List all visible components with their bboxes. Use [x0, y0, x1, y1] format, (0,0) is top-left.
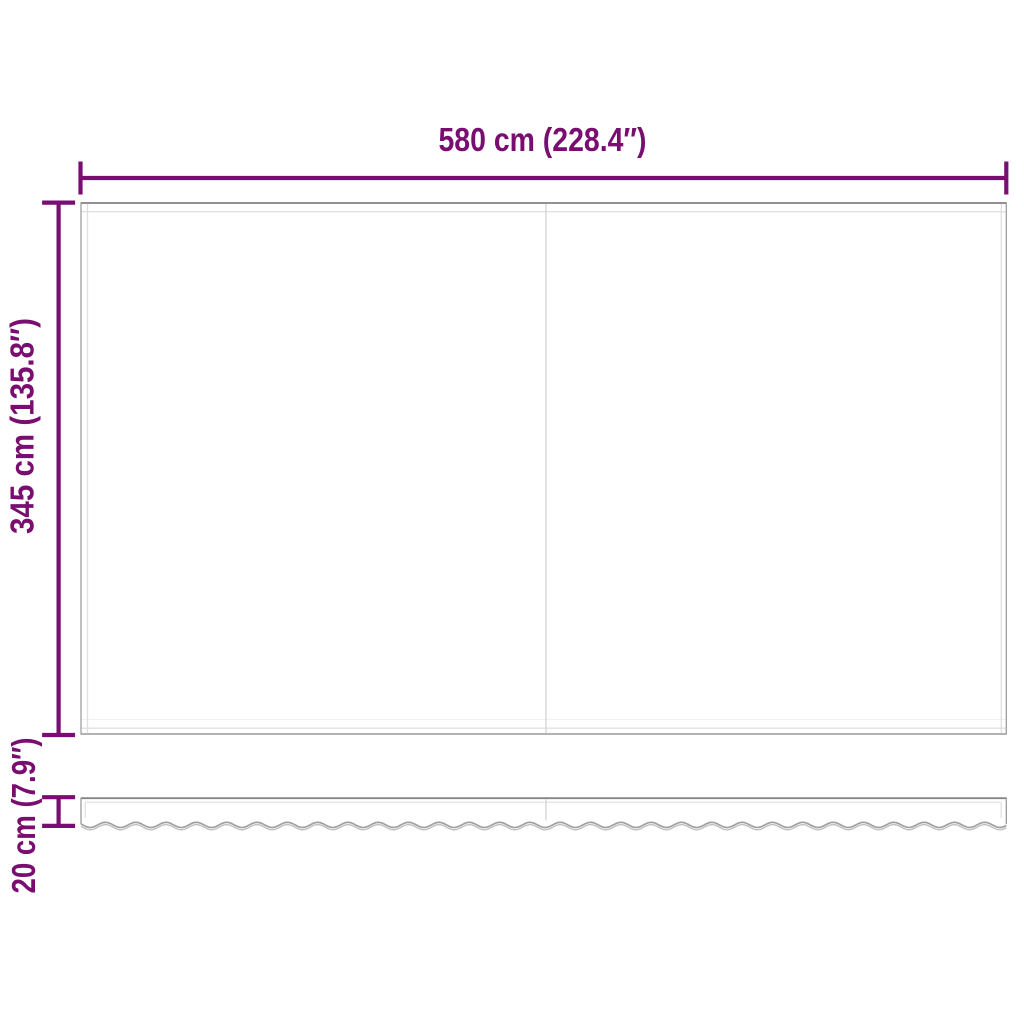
svg-text:345 cm (135.8″): 345 cm (135.8″) [5, 318, 42, 534]
svg-text:20 cm (7.9″): 20 cm (7.9″) [6, 738, 43, 894]
svg-text:580 cm (228.4″): 580 cm (228.4″) [439, 122, 647, 159]
